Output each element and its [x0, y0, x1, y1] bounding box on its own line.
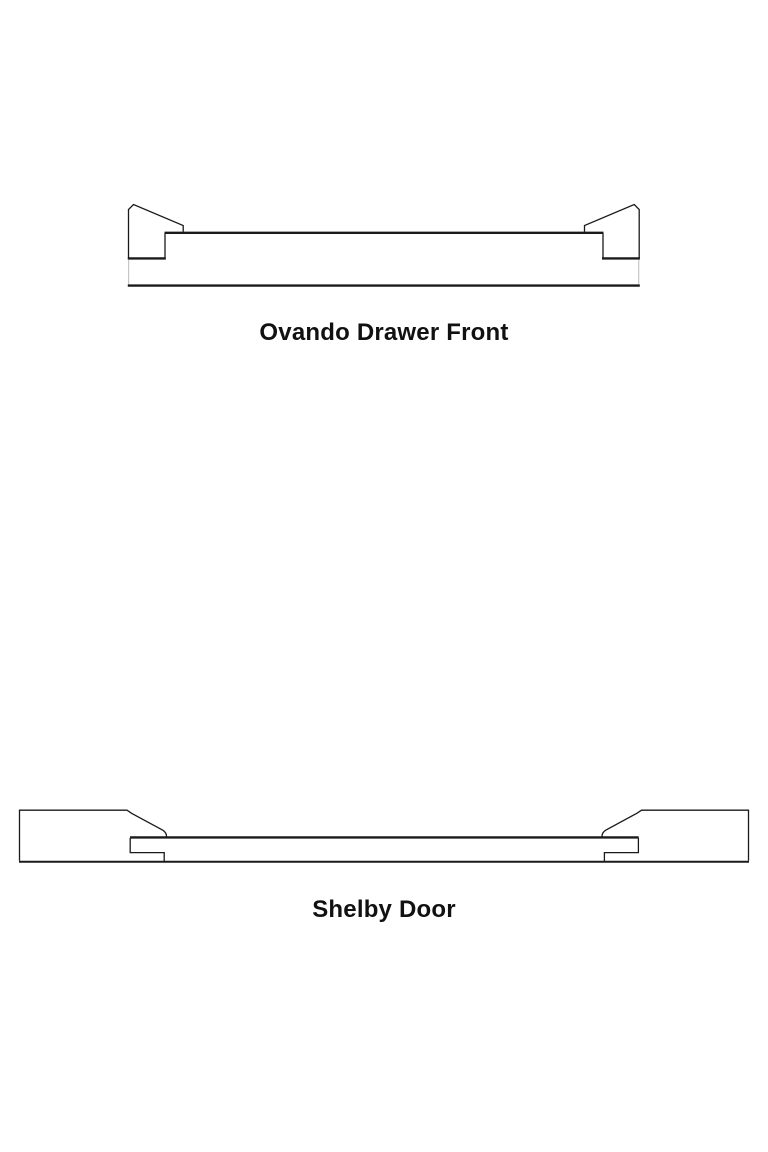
ovando-left-ear-outline [129, 205, 184, 259]
ovando-figure-caption: Ovando Drawer Front [0, 321, 768, 345]
shelby-figure-caption: Shelby Door [0, 898, 768, 922]
shelby-door-drawing [19, 810, 749, 862]
ovando-right-ear-outline [585, 205, 640, 259]
shelby-left-groove [130, 838, 164, 862]
shelby-right-groove [604, 838, 638, 862]
profile-drawings [0, 0, 768, 1152]
catalog-page: Ovando Drawer Front Shelby Door [0, 0, 768, 1152]
ovando-drawer-front-drawing [128, 205, 640, 286]
